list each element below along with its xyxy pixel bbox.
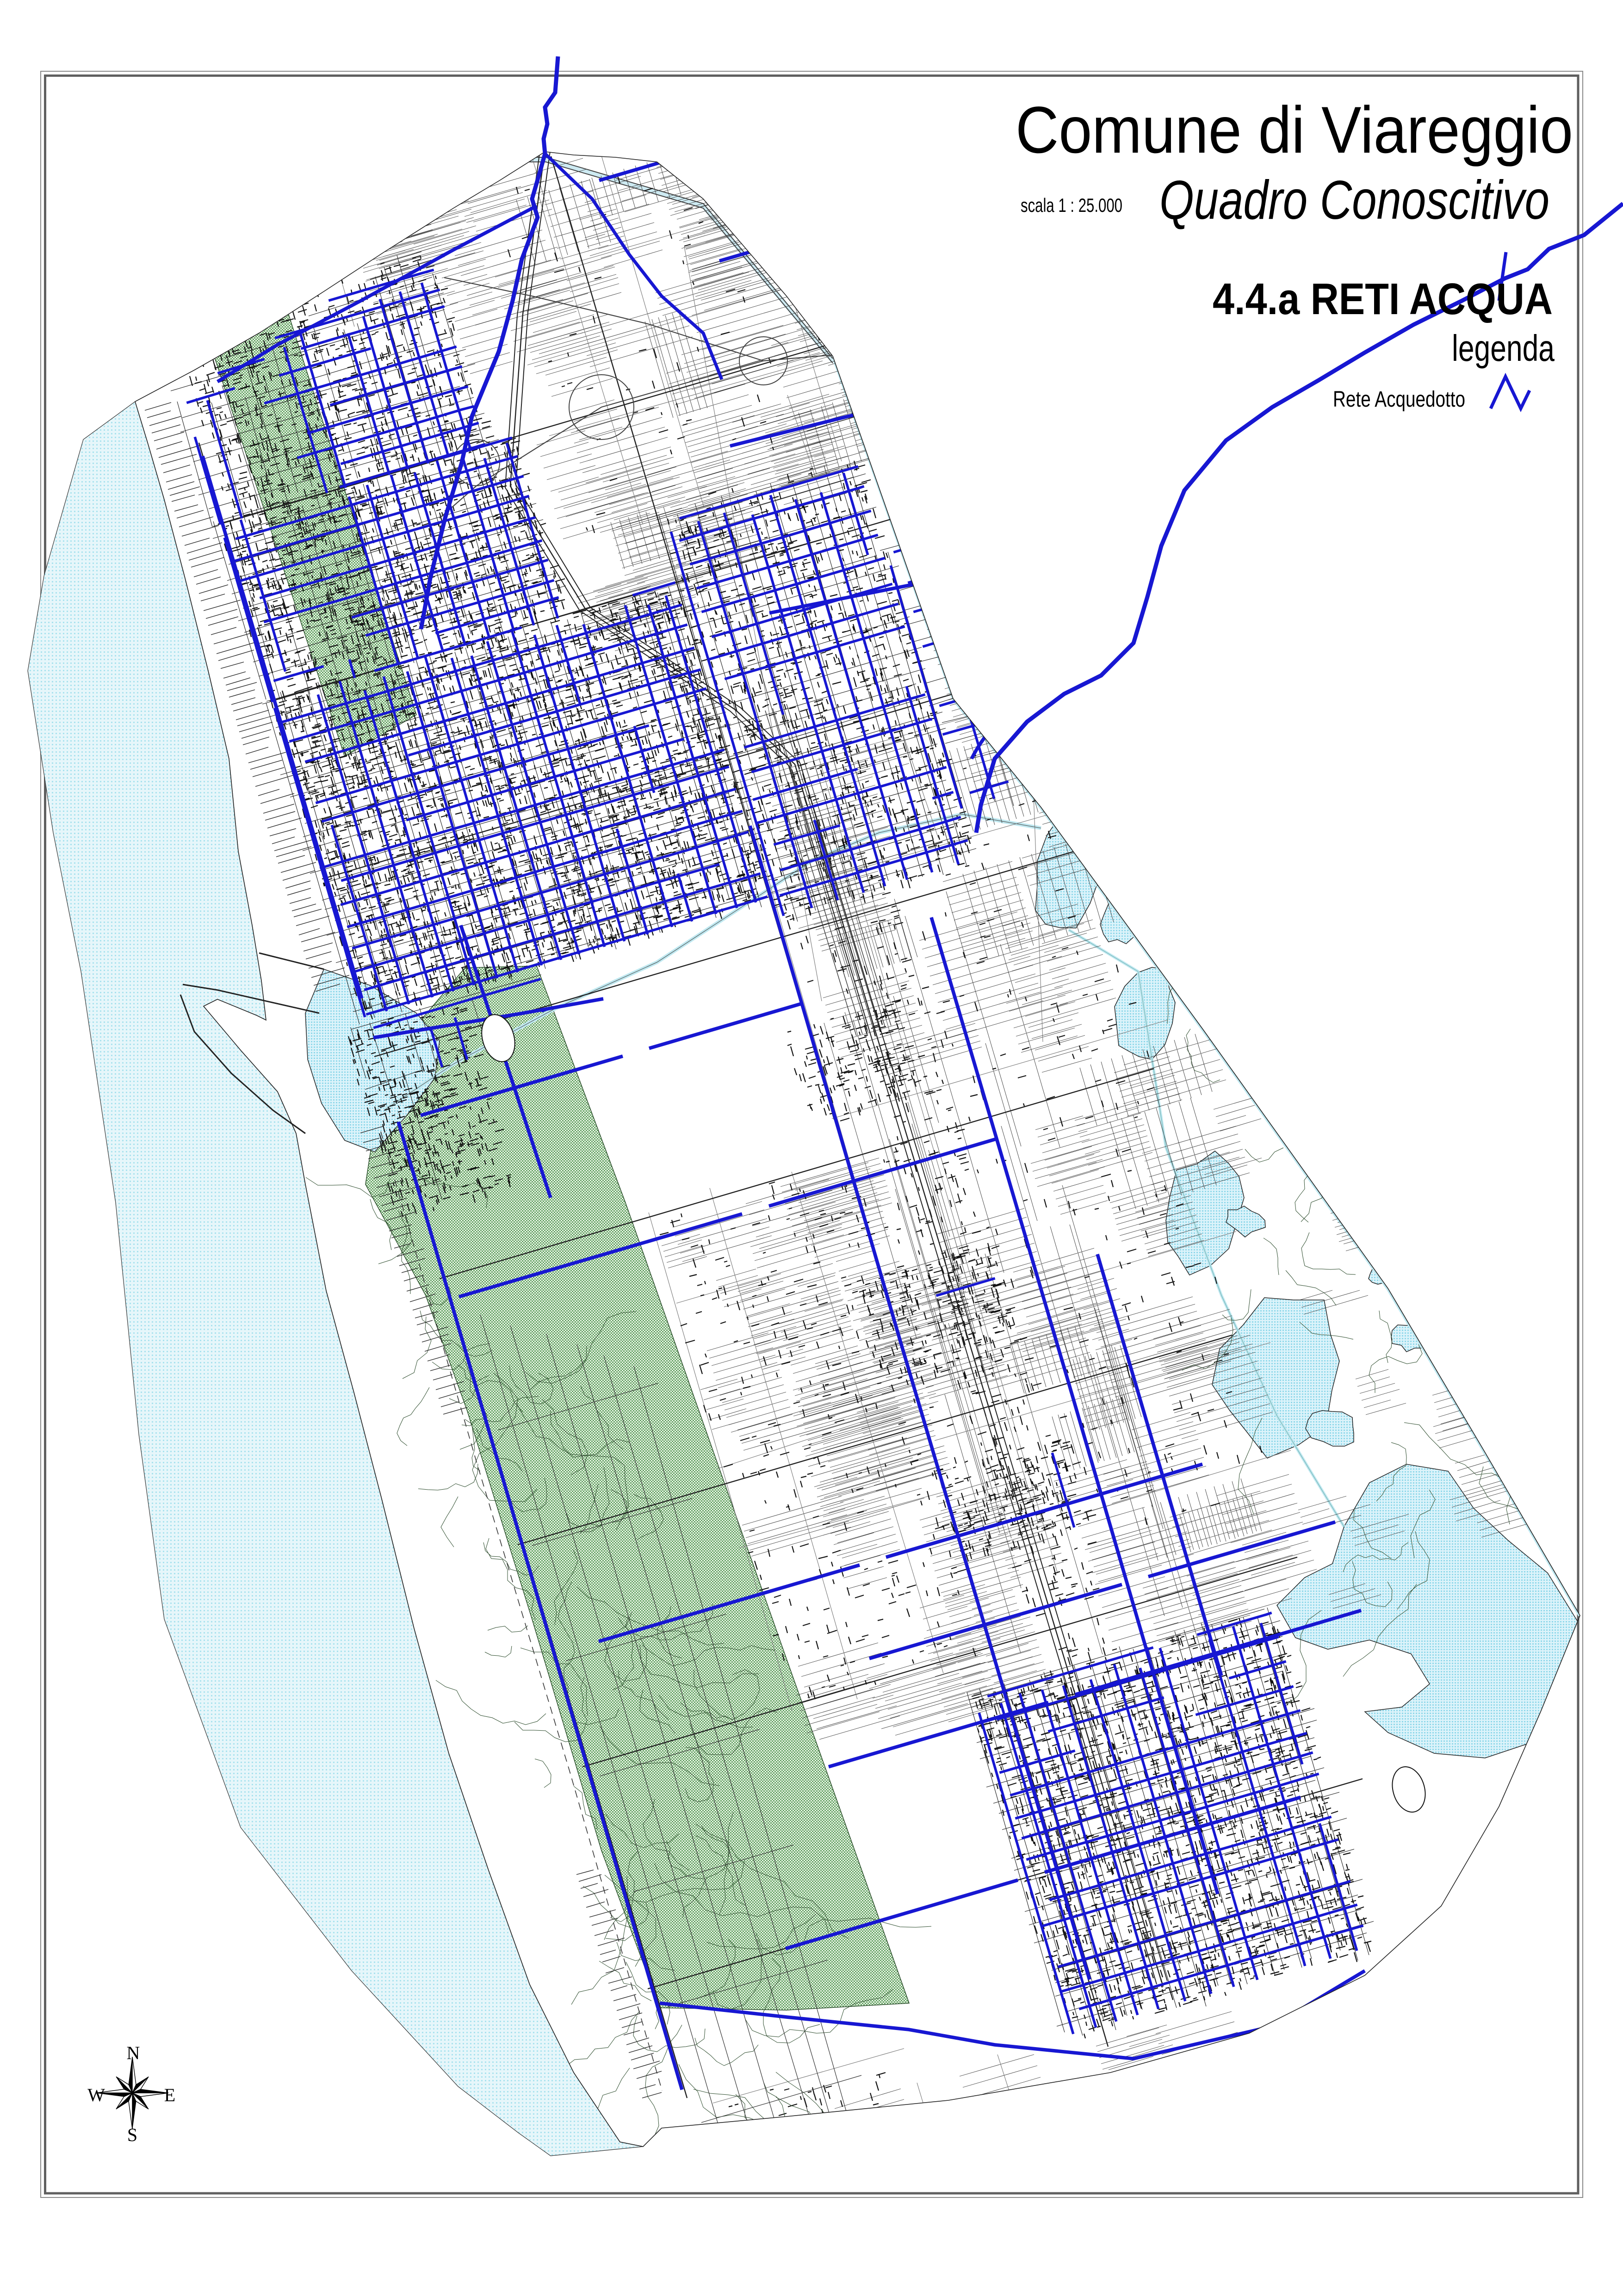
svg-text:W: W [87, 2085, 105, 2105]
svg-text:4.4.a RETI ACQUA: 4.4.a RETI ACQUA [1213, 274, 1553, 324]
svg-text:E: E [164, 2085, 175, 2105]
svg-text:N: N [127, 2042, 140, 2063]
svg-text:Comune di Viareggio: Comune di Viareggio [1016, 93, 1573, 167]
svg-text:scala 1 : 25.000: scala 1 : 25.000 [1021, 194, 1122, 216]
svg-text:S: S [127, 2124, 137, 2145]
svg-text:legenda: legenda [1452, 328, 1555, 369]
svg-text:Rete Acquedotto: Rete Acquedotto [1333, 387, 1465, 412]
svg-text:Quadro Conoscitivo: Quadro Conoscitivo [1159, 169, 1549, 231]
